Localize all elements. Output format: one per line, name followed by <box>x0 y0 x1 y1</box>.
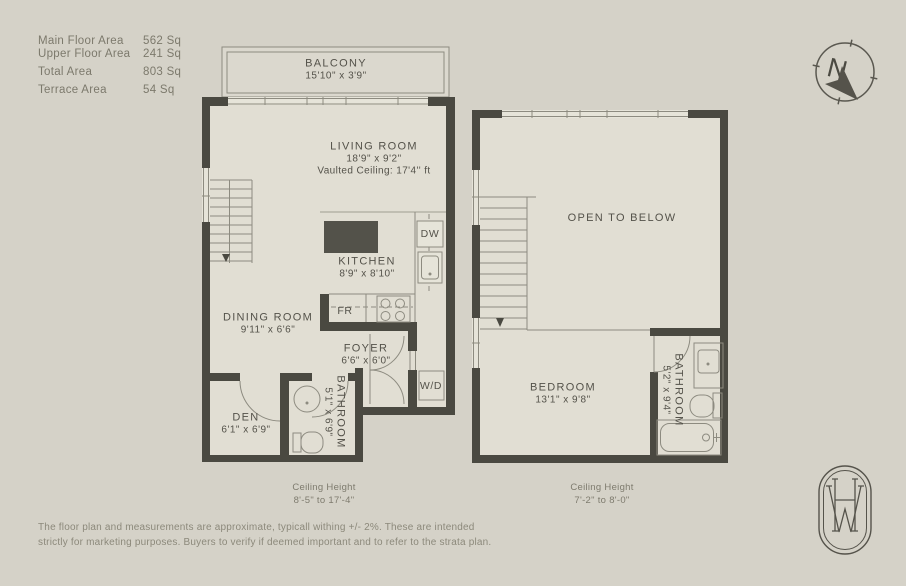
upper-floor-interior <box>472 110 728 463</box>
washer-dryer-label: W/D <box>420 380 442 392</box>
legend-row: Terrace Area 54 Sq <box>38 84 181 97</box>
legend-row: Total Area 803 Sq <box>38 66 181 79</box>
open-to-below-label: OPEN TO BELOW <box>568 212 677 224</box>
dishwasher-label: DW <box>421 228 440 240</box>
legend-row: Main Floor Area 562 Sq <box>38 35 181 48</box>
kitchen-island <box>324 221 378 253</box>
legend-value: 562 Sq <box>143 35 181 48</box>
disclaimer-text: The floor plan and measurements are appr… <box>38 521 491 550</box>
legend-label: Total Area <box>38 66 143 79</box>
upper-floor-plan <box>472 110 728 463</box>
legend-value: 54 Sq <box>143 84 175 97</box>
area-legend: Main Floor Area 562 Sq Upper Floor Area … <box>38 35 181 97</box>
living-room-label: LIVING ROOM 18'9" x 9'2" Vaulted Ceiling… <box>317 141 430 178</box>
legend-value: 803 Sq <box>143 66 181 79</box>
legend-row: Upper Floor Area 241 Sq <box>38 48 181 61</box>
floorplan-page: Main Floor Area 562 Sq Upper Floor Area … <box>0 0 906 586</box>
legend-label: Terrace Area <box>38 84 143 97</box>
foyer-label: FOYER 6'6" x 6'0" <box>341 343 390 368</box>
legend-label: Upper Floor Area <box>38 48 143 61</box>
kitchen-label: KITCHEN 8'9" x 8'10" <box>338 256 395 281</box>
upper-bathroom-label: BATHROOM 5'2" x 9'4" <box>660 353 685 426</box>
balcony-label: BALCONY 15'10" x 3'9" <box>305 58 367 83</box>
dining-room-label: DINING ROOM 9'11" x 6'6" <box>223 312 313 337</box>
hw-monogram-icon <box>812 462 878 558</box>
fridge-label: FR <box>337 305 352 317</box>
den-label: DEN 6'1" x 6'9" <box>221 412 270 437</box>
upper-ceiling-height: Ceiling Height 7'-2" to 8'-0" <box>570 481 633 507</box>
main-bathroom-label: BATHROOM 5'1" x 6'9" <box>322 375 347 448</box>
legend-label: Main Floor Area <box>38 35 143 48</box>
north-arrow-icon: N <box>803 30 888 115</box>
bedroom-label: BEDROOM 13'1" x 9'8" <box>530 382 596 407</box>
main-ceiling-height: Ceiling Height 8'-5" to 17'-4" <box>292 481 355 507</box>
legend-value: 241 Sq <box>143 48 181 61</box>
